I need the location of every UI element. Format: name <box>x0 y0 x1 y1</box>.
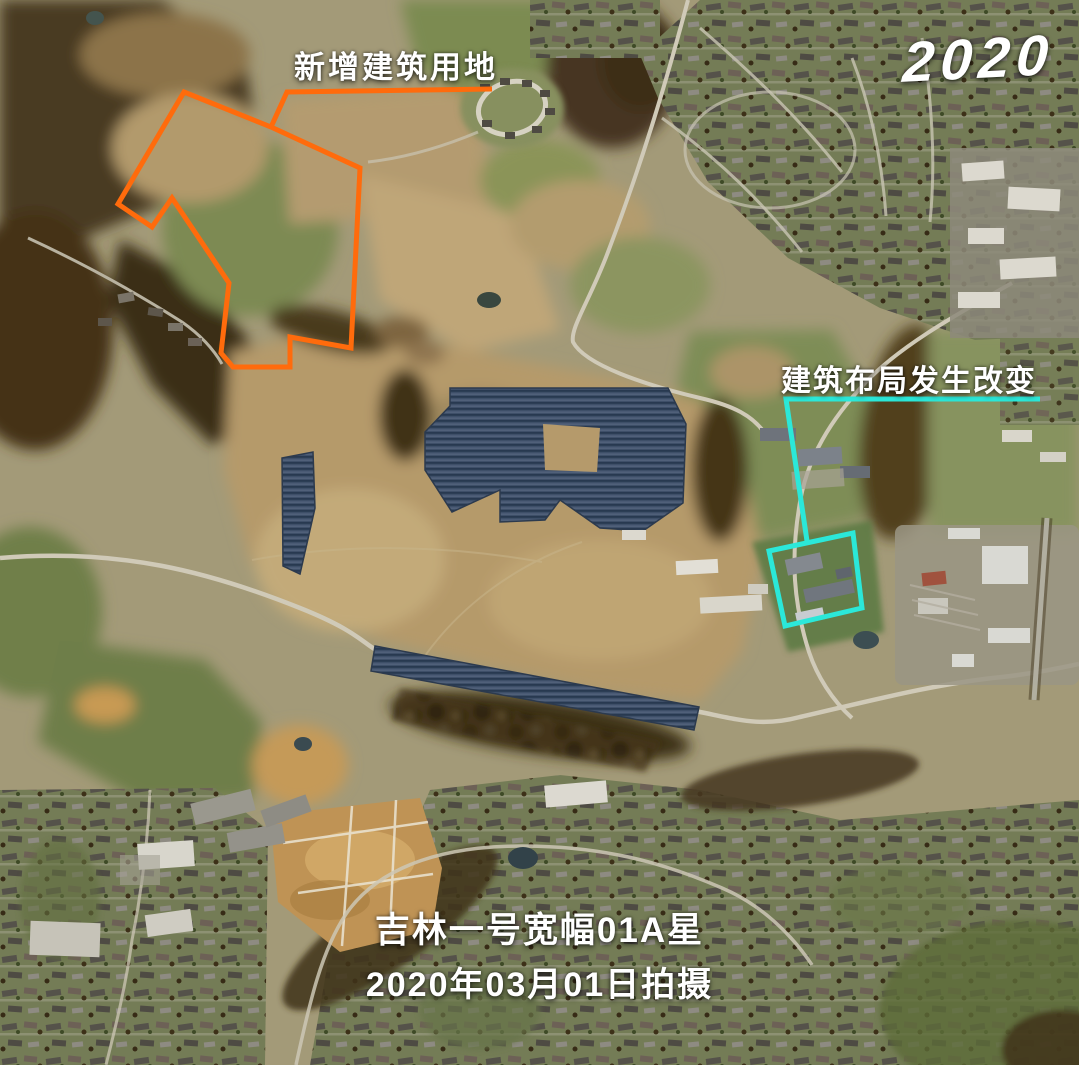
year-label: 2020 <box>901 22 1056 96</box>
new-construction-label: 新增建筑用地 <box>294 42 498 87</box>
layout-change-box <box>769 533 862 626</box>
layout-change-label: 建筑布局发生改变 <box>781 356 1037 400</box>
new-construction-polygon <box>118 92 360 367</box>
new-construction-leader-line <box>271 89 492 127</box>
annotated-satellite-view: 新增建筑用地 建筑布局发生改变 2020 吉林一号宽幅01A星 2020年03月… <box>0 0 1079 1065</box>
caption-capture-date: 2020年03月01日拍摄 <box>0 957 1079 1006</box>
layout-change-leader-line <box>786 399 1040 541</box>
caption-satellite-name: 吉林一号宽幅01A星 <box>0 902 1079 953</box>
